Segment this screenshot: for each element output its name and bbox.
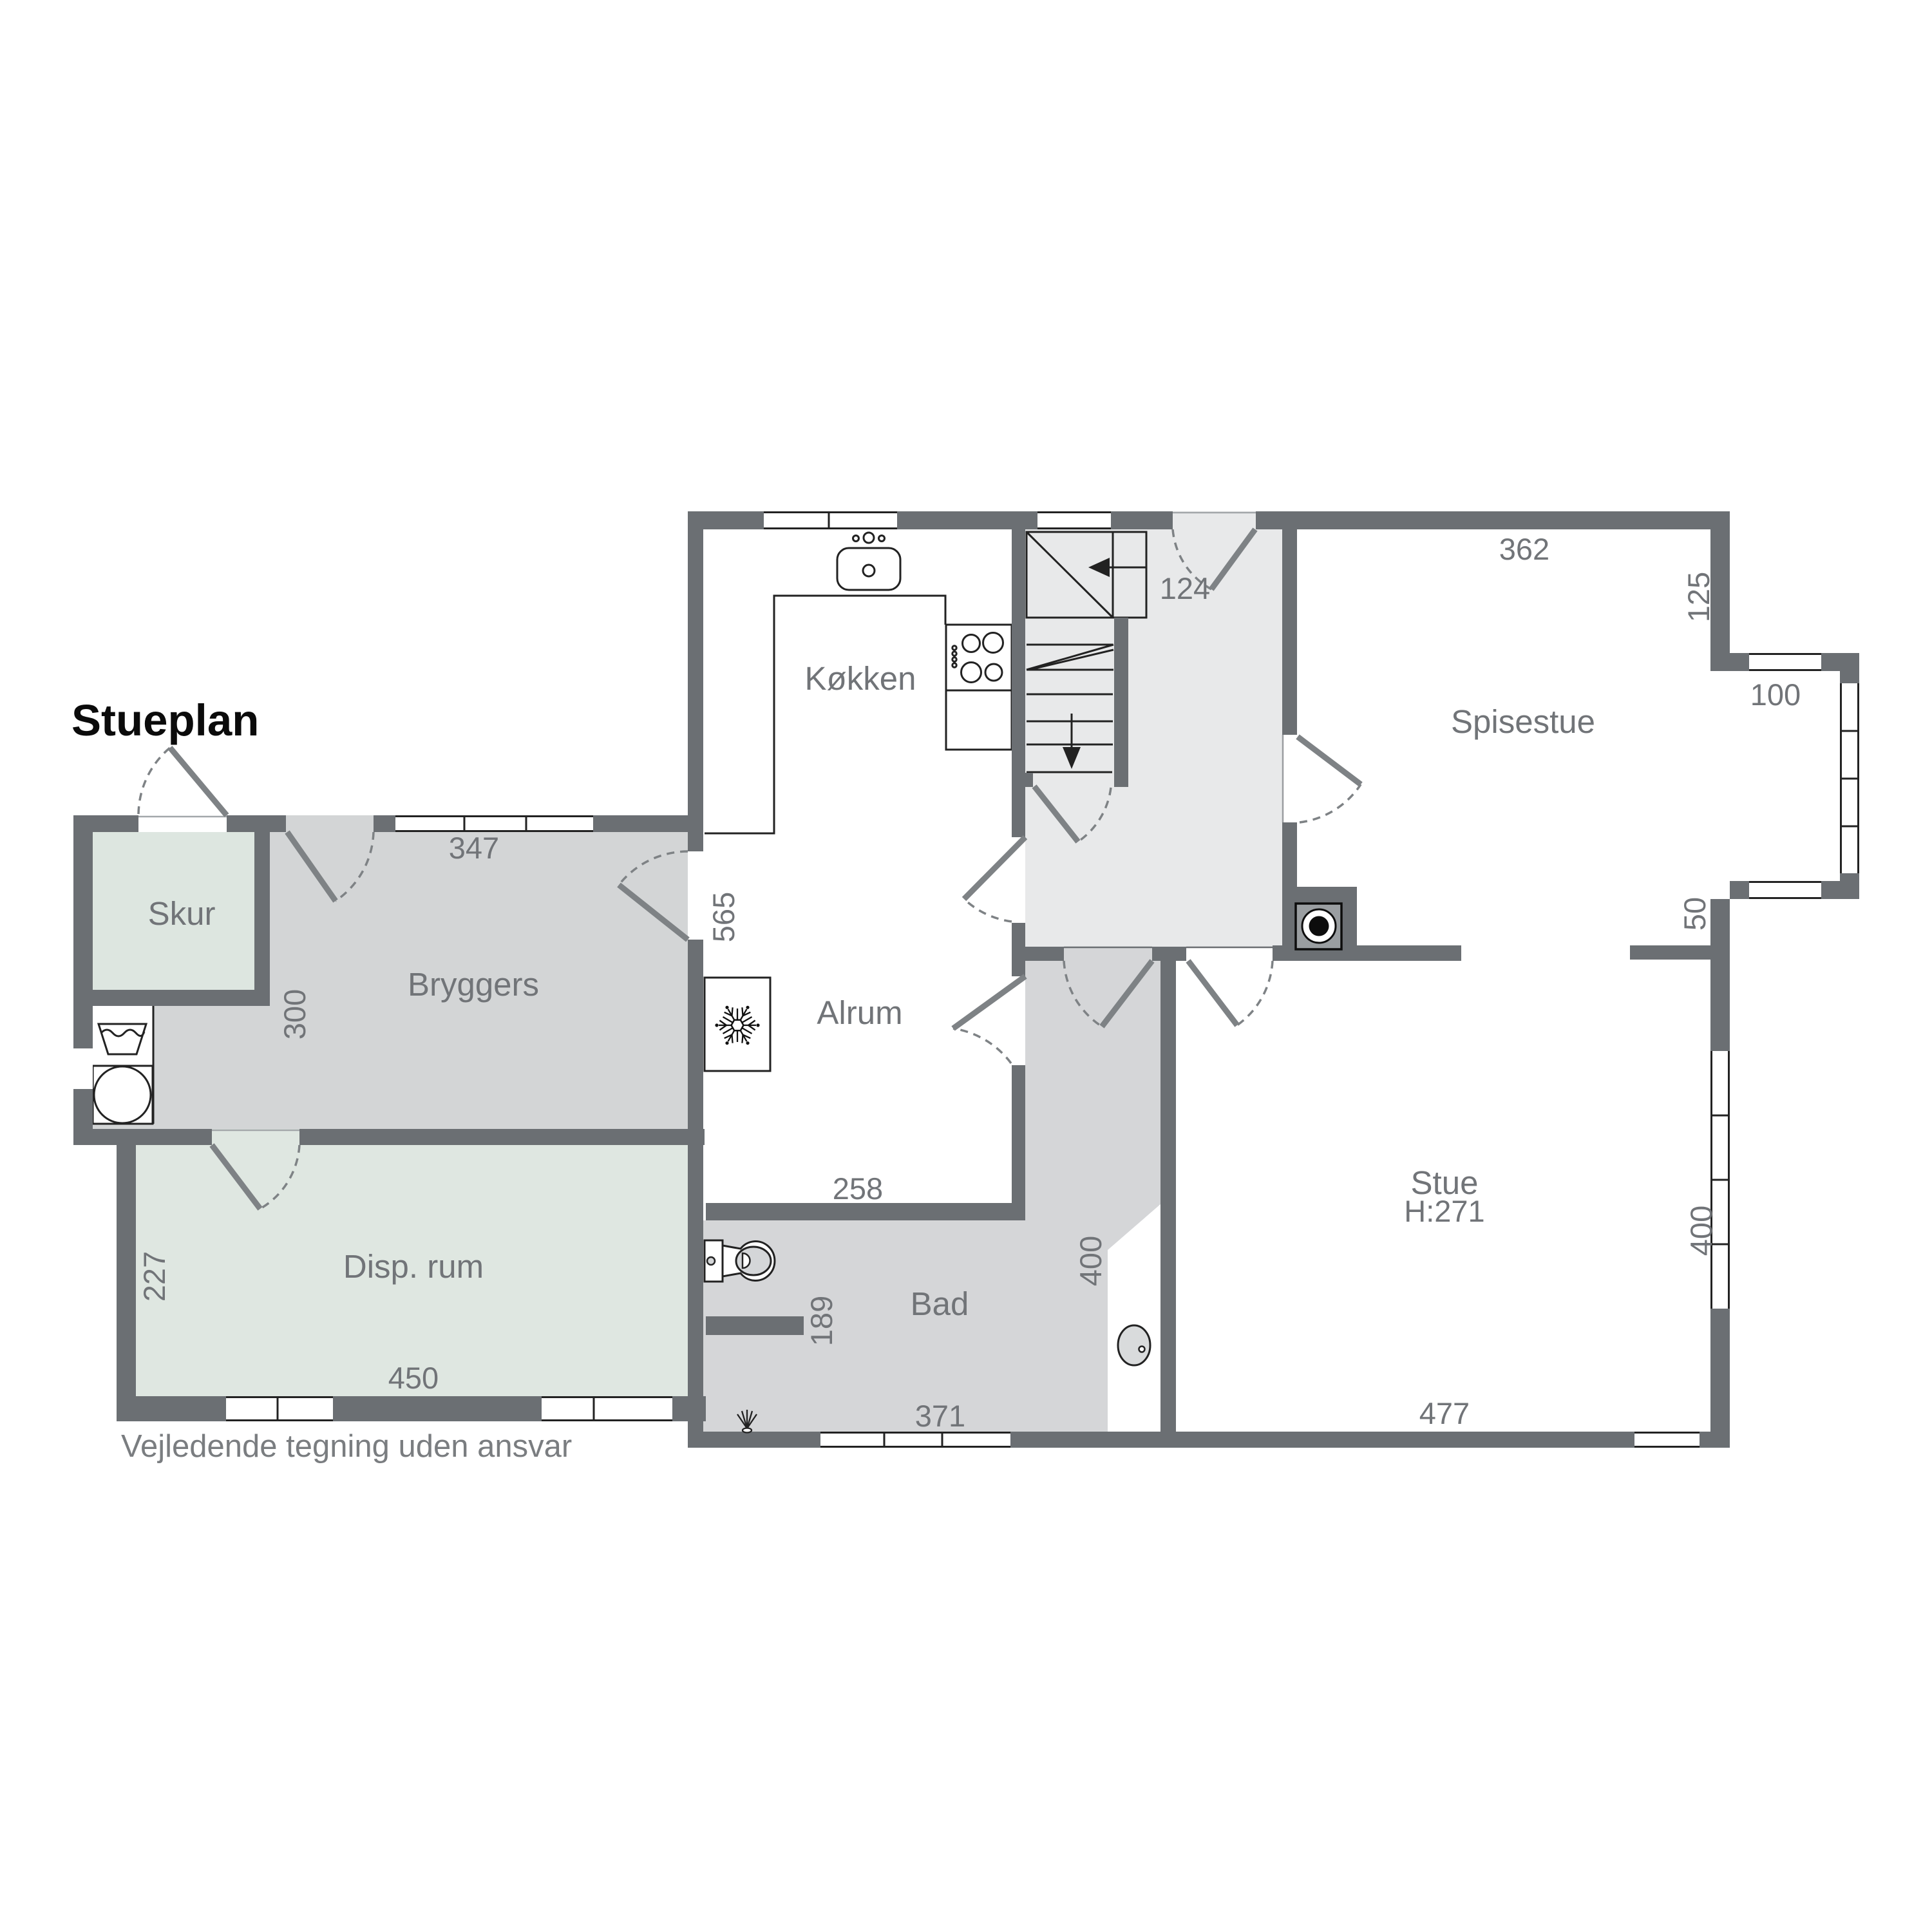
svg-text:Bryggers: Bryggers: [408, 966, 539, 1003]
svg-text:371: 371: [915, 1399, 965, 1433]
svg-text:Køkken: Køkken: [805, 660, 916, 697]
svg-text:Bad: Bad: [911, 1285, 969, 1322]
svg-text:400: 400: [1684, 1206, 1718, 1256]
svg-text:189: 189: [804, 1296, 838, 1346]
svg-text:258: 258: [833, 1171, 883, 1206]
svg-text:Disp. rum: Disp. rum: [343, 1248, 484, 1285]
svg-text:Spisestue: Spisestue: [1451, 703, 1595, 740]
svg-text:362: 362: [1499, 532, 1549, 566]
svg-text:100: 100: [1750, 677, 1801, 712]
svg-text:300: 300: [278, 989, 312, 1039]
svg-text:50: 50: [1678, 897, 1712, 931]
svg-text:Vejledende tegning uden ansvar: Vejledende tegning uden ansvar: [121, 1429, 572, 1464]
svg-text:565: 565: [706, 892, 741, 942]
svg-text:227: 227: [137, 1251, 171, 1302]
svg-text:Stueplan: Stueplan: [71, 696, 259, 745]
svg-text:H:271: H:271: [1404, 1194, 1484, 1228]
svg-text:125: 125: [1681, 572, 1716, 622]
svg-text:450: 450: [388, 1361, 439, 1395]
svg-text:Alrum: Alrum: [817, 994, 902, 1031]
svg-text:124: 124: [1160, 571, 1210, 605]
svg-text:477: 477: [1419, 1396, 1470, 1430]
svg-text:Skur: Skur: [148, 895, 216, 932]
svg-text:347: 347: [449, 831, 499, 865]
svg-text:400: 400: [1074, 1236, 1108, 1286]
